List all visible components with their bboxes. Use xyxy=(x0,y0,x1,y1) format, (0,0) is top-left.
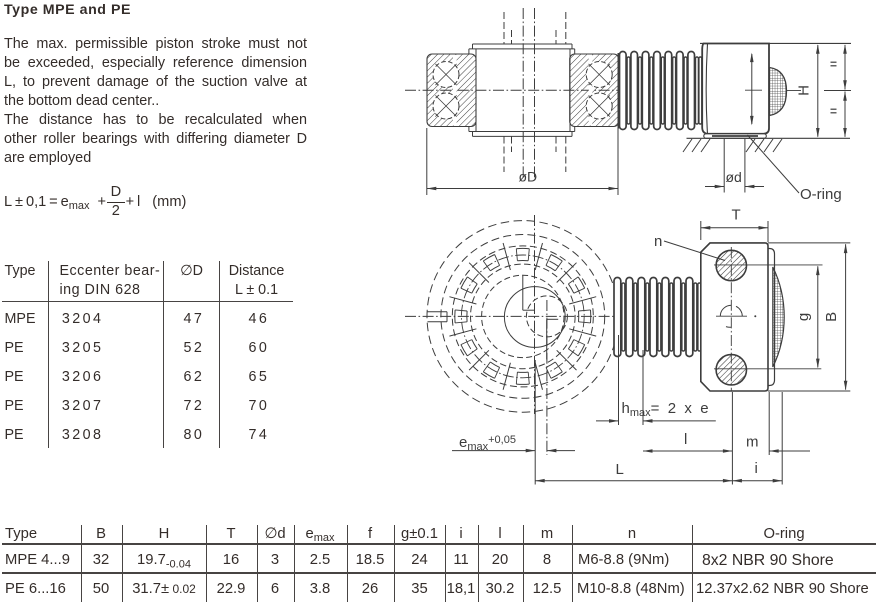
svg-text:m: m xyxy=(746,434,759,451)
svg-text:L: L xyxy=(616,461,624,478)
svg-text:O-ring: O-ring xyxy=(800,186,842,203)
svg-text:T: T xyxy=(732,207,741,224)
svg-text:hmax= 2 x e: hmax= 2 x e xyxy=(622,400,709,419)
svg-text:ød: ød xyxy=(726,169,742,185)
svg-text:øD: øD xyxy=(519,169,538,185)
svg-text:g: g xyxy=(795,313,812,321)
svg-text:i: i xyxy=(755,460,758,477)
svg-text:H: H xyxy=(796,85,813,96)
svg-text:n: n xyxy=(654,233,662,250)
svg-text:B: B xyxy=(823,312,840,322)
svg-text:l: l xyxy=(684,431,687,448)
